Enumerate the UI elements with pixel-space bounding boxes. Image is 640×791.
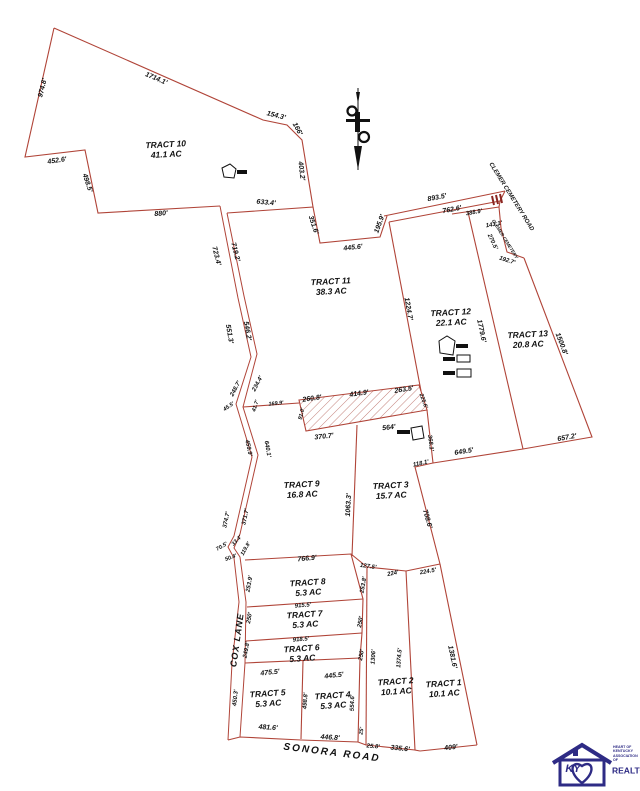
realtor-logo-icon	[553, 745, 611, 785]
dimension-label: 1306'	[370, 649, 377, 664]
tract-label: TRACT 1041.1 AC	[145, 139, 187, 161]
dimension-label: 880'	[154, 210, 168, 218]
tract-label: TRACT 45.3 AC	[314, 690, 351, 712]
logo-line1: HEART OF KENTUCKY	[613, 745, 640, 754]
dimension-label: 25.8'	[366, 743, 380, 750]
tract-label: TRACT 210.1 AC	[377, 676, 414, 698]
tract-label: TRACT 55.3 AC	[249, 688, 286, 710]
barn-icon	[443, 369, 471, 377]
plat-map: KY HEART OF KENTUCKY ASSOCIATION OF REAL…	[0, 0, 640, 791]
dimension-label: 498.8'	[302, 693, 309, 710]
tract-label: TRACT 1138.3 AC	[311, 276, 352, 298]
tract-acreage: 16.8 AC	[284, 489, 320, 501]
tract-label: TRACT 315.7 AC	[373, 480, 410, 501]
north-arrow-icon	[346, 88, 370, 170]
tract-acreage: 15.7 AC	[373, 490, 409, 502]
dimension-label: 1063.3'	[345, 493, 353, 516]
barn-icon	[443, 355, 470, 362]
tract-label: TRACT 1320.8 AC	[507, 329, 549, 351]
tract-label: TRACT 85.3 AC	[289, 577, 326, 599]
house-icon	[397, 426, 424, 440]
logo-realtors-text: REALTORS®	[612, 766, 640, 777]
tract-label: TRACT 1222.1 AC	[430, 307, 472, 329]
tract-acreage: 38.3 AC	[311, 286, 351, 298]
dimension-label: 25'	[358, 727, 365, 735]
house-icon	[439, 336, 468, 355]
logo-line2: ASSOCIATION OF	[613, 754, 640, 763]
road-end-ticks	[492, 194, 502, 205]
tract-label: TRACT 65.3 AC	[283, 643, 320, 665]
tract-label: TRACT 916.8 AC	[284, 479, 321, 500]
tract-label: TRACT 110.1 AC	[425, 678, 462, 700]
logo-ky-text: KY	[565, 763, 580, 777]
dimension-label: 446.8'	[320, 734, 340, 742]
house-icon	[222, 164, 247, 178]
tract-label: TRACT 75.3 AC	[286, 609, 323, 631]
dimension-label: 481.6'	[258, 724, 278, 732]
logo-association-text: HEART OF KENTUCKY ASSOCIATION OF	[613, 745, 640, 763]
